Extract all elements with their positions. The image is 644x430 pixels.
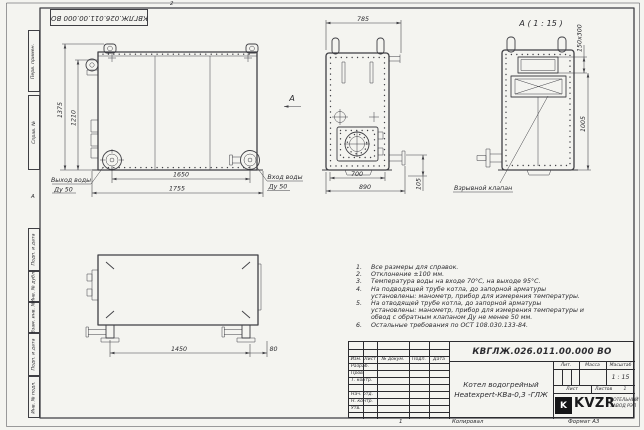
sheet-label: Лист [553,385,591,393]
explosion-valve-label: Взрывной клапан [454,185,512,192]
front-view: 1375 1210 1650 1755 Выход воды Ду 50 Вхо… [51,44,303,197]
dim-150x300: 150х300 [577,24,584,52]
row-utv: Утв. [349,405,377,412]
zone-mark-top: 2 [170,1,174,7]
margin-label: Перв. примен. [32,43,37,78]
detail-view: А ( 1 : 15 ) 150х300 [477,18,591,175]
dim-1210: 1210 [71,110,78,126]
col-sign: Подп. [409,356,429,363]
dim-890: 890 [359,184,371,191]
margin-label: Подп. и дата [32,339,37,371]
margin-inv-podl: Инв. № подл. [28,376,40,418]
note-number: 6. [356,322,362,329]
scale-label: Масштаб [606,361,635,369]
drawing-sheet: 1375 1210 1650 1755 Выход воды Ду 50 Вхо… [0,0,644,430]
note-text: На отводящей трубе котла, до запорной ар… [371,300,584,321]
kvzr-logo-icon: K [555,397,572,414]
margin-podp-data-1: Подп. и дата [28,228,40,271]
explosion-valve [511,76,566,97]
note-number: 3. [356,278,362,285]
outlet-dn-label: Ду 50 [53,186,73,193]
dim-80: 80 [269,346,277,353]
col-date: Дата [429,356,449,363]
row-nachotd: Нач. отд. [349,391,377,398]
col-doc: № докум. [377,356,409,363]
dim-1650: 1650 [173,172,189,179]
row-razrab: Разраб. [349,363,377,370]
plan-view: 1450 80 [86,255,278,357]
boiler-body [98,52,257,170]
note-number: 1. [356,264,362,271]
view-arrow-label: А [288,93,295,103]
top-designation-stamp: КВГЛЖ.026.011.00.000 ВО [50,9,148,26]
note-number: 4. [356,286,362,293]
outlet-label: Выход воды [51,177,91,184]
inlet-flange [230,151,260,170]
margin-label: Взам. инв. № [32,302,37,334]
dim-105: 105 [416,178,423,190]
product-name: Котел водогрейный Heatexpert-КВа-0,3 -ГЛ… [449,361,553,419]
dim-700: 700 [351,171,363,178]
dim-785: 785 [357,16,369,23]
row-tkontr: Т. контр. [349,377,377,384]
margin-label: Подп. и дата [32,234,37,266]
note-4: 4.На подводящей трубе котла, до запорной… [354,286,586,300]
col-izm: Изм. [349,356,363,363]
note-text: Температура воды на входе 70°С, на выход… [371,278,541,285]
margin-inv-dubl: Инв. № дубл. [28,271,40,302]
margin-sprav: Справ. № [28,95,40,170]
detail-view-title: А ( 1 : 15 ) [518,18,562,28]
designation: КВГЛЖ.026.011.00.000 ВО [449,342,635,361]
side-view: 785 700 890 105 Взрывной клапан [322,16,548,194]
sheets-label: Листов [593,385,617,393]
dim-1005: 1005 [580,116,587,132]
plan-right-leg [222,325,255,342]
margin-label: Инв. № подл. [32,381,37,413]
margin-label: Справ. № [32,121,37,144]
row-nkontr: Н. контр. [349,398,377,405]
note-6: 6.Остальные требования по ОСТ 108.030.13… [354,322,586,329]
note-number: 5. [356,300,362,307]
dim-1755: 1755 [169,186,185,193]
sheets-value: 1 [617,385,633,393]
product-name-line2: Heatexpert-КВа-0,3 -ГЛЖ [454,390,548,400]
note-5: 5.На отводящей трубе котла, до запорной … [354,300,586,322]
top-designation-text: КВГЛЖ.026.011.00.000 ВО [51,14,148,22]
note-text: На подводящей трубе котла, до запорной а… [371,286,580,300]
dim-1450: 1450 [171,346,187,353]
margin-label: Инв. № дубл. [32,270,37,302]
note-text: Все размеры для справок. [371,264,458,271]
note-3: 3.Температура воды на входе 70°С, на вых… [354,278,586,285]
dim-1375: 1375 [57,102,64,118]
note-number: 2. [356,271,362,278]
title-block: КВГЛЖ.026.011.00.000 ВО Котел водогрейны… [348,341,634,418]
plan-left-leg [86,325,119,342]
margin-perv-primen: Перв. примен. [28,30,40,92]
burner-door [337,127,383,161]
inlet-dn-label: Ду 50 [268,184,288,191]
footer-format: Формат А3 [568,419,599,425]
zone-mark-left: А [31,194,35,200]
company-line2: ЗАВОД РЭП [610,404,639,410]
scale-value: 1 : 15 [606,369,635,385]
row-prov: Пров. [349,370,377,377]
margin-vzam-inv: Взам. инв. № [28,302,40,333]
kvzr-logo-text: KVZR [574,396,615,411]
note-text: Остальные требования по ОСТ 108.030.133-… [371,322,528,329]
inlet-label: Вход воды [267,174,302,181]
note-1: 1.Все размеры для справок. [354,264,586,271]
margin-podp-data-2: Подп. и дата [28,333,40,376]
mass-label: Масса [579,361,606,369]
footer-sheet-num: 1 [399,419,403,425]
company-name: КОТЕЛЬНЫЙ ЗАВОД РЭП [610,398,639,410]
product-name-line1: Котел водогрейный [463,380,538,390]
footer-copied-by: Копировал [452,419,483,425]
technical-notes: 1.Все размеры для справок. 2.Отклонение … [354,264,592,329]
col-list: Лист [363,356,377,363]
lit-label: Лит. [553,361,579,369]
